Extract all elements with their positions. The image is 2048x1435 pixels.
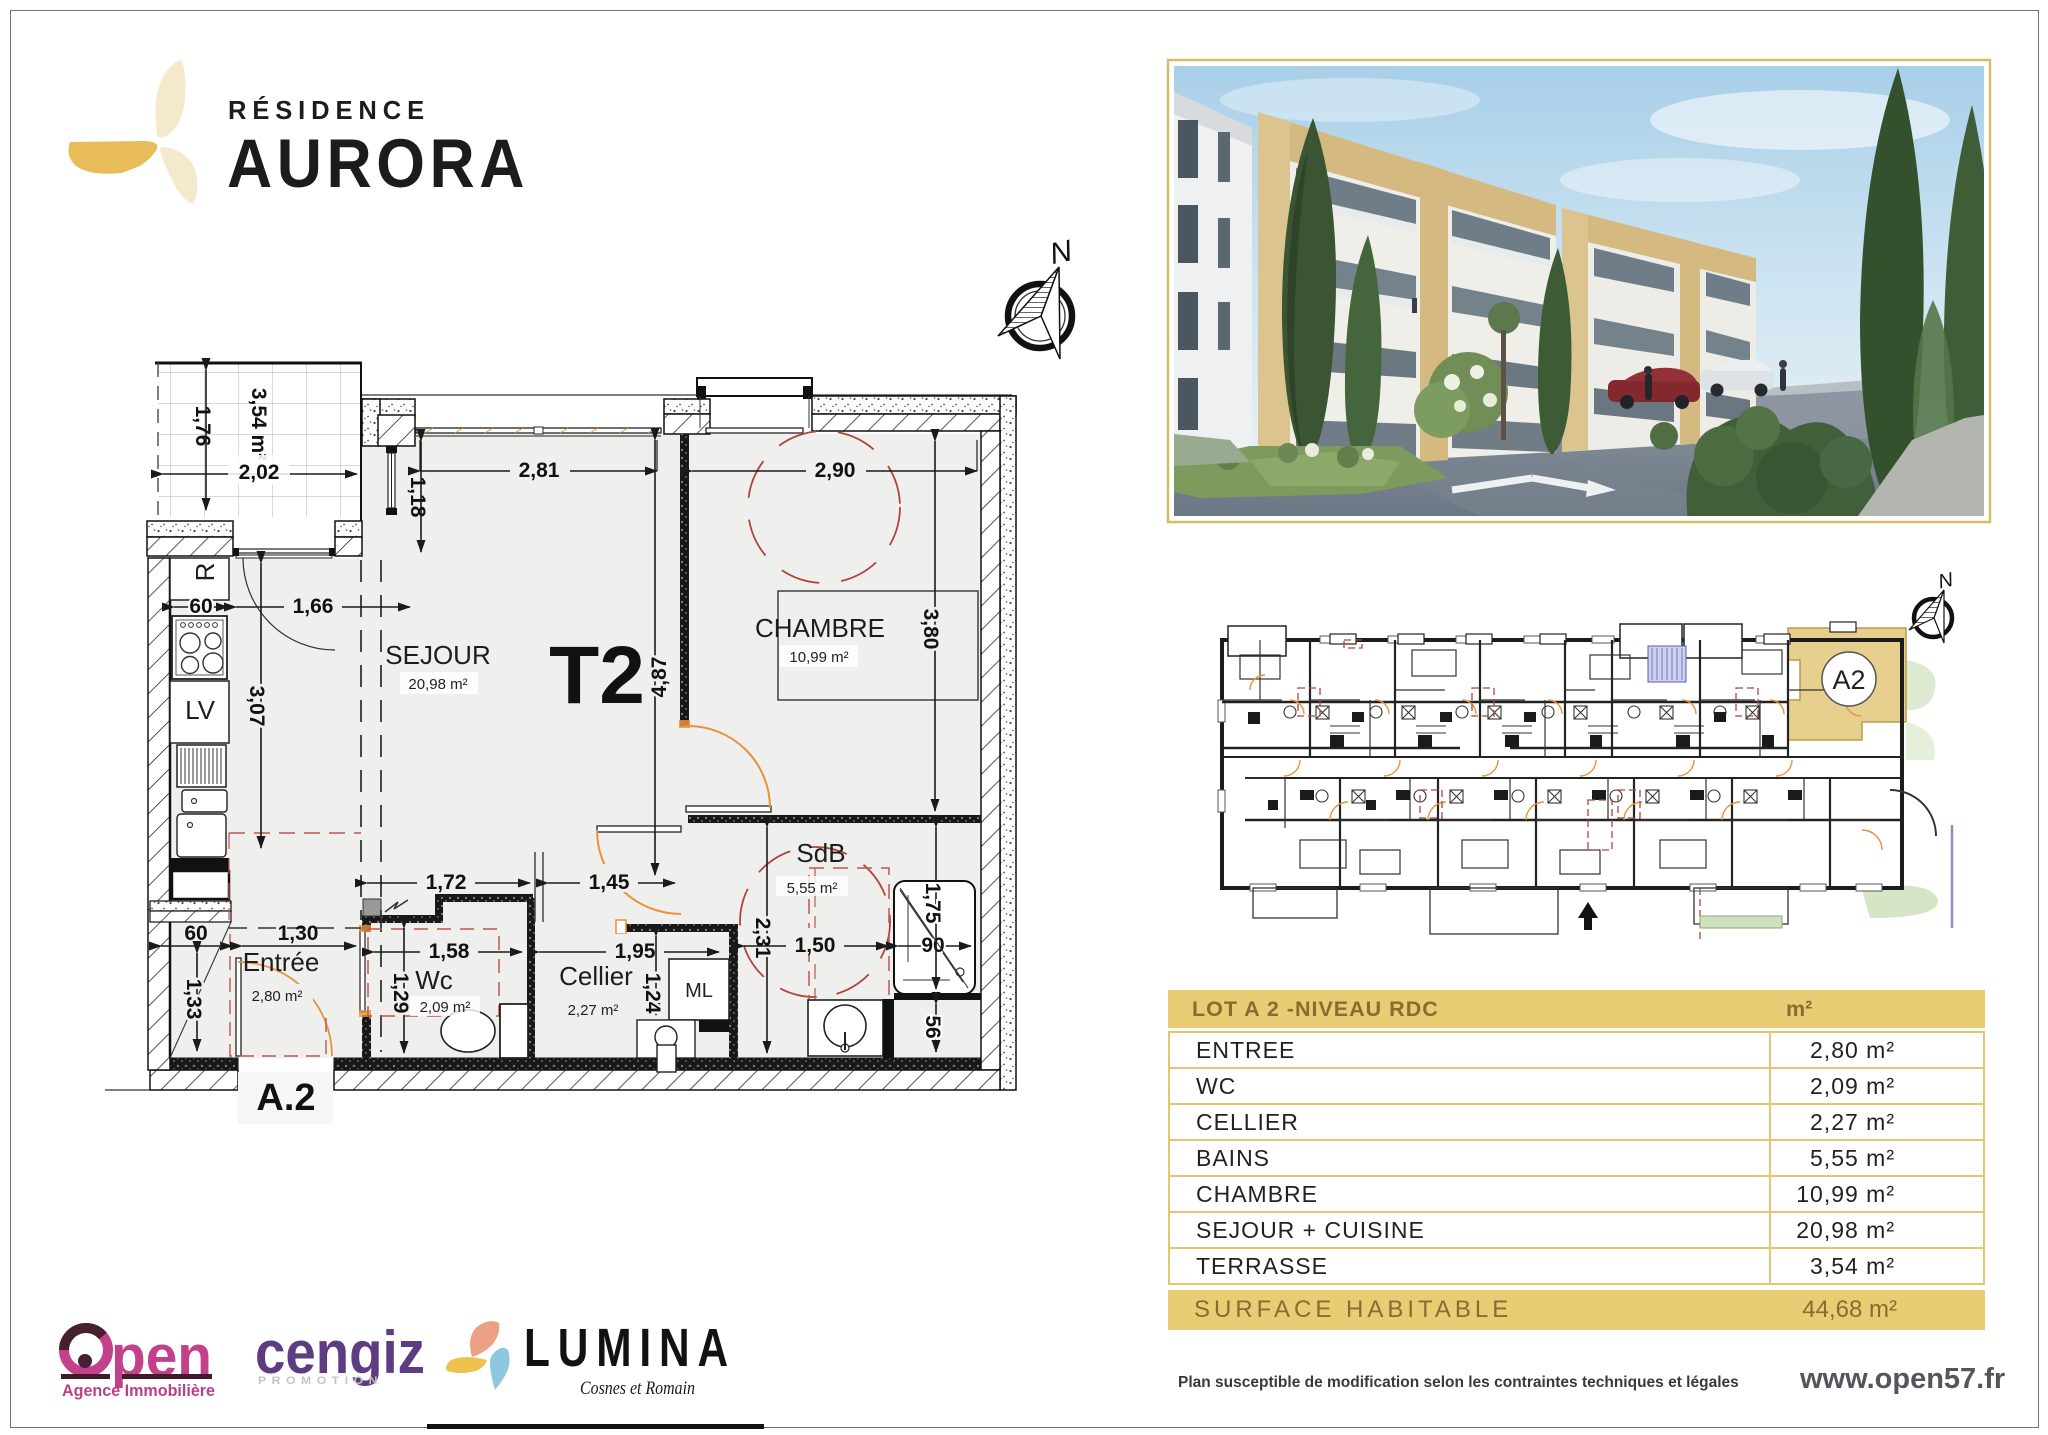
svg-text:Cellier: Cellier: [559, 961, 633, 991]
svg-text:2,90: 2,90: [815, 459, 856, 482]
svg-text:1,30: 1,30: [278, 922, 319, 945]
svg-text:LUMINA: LUMINA: [524, 1318, 736, 1378]
svg-text:1,50: 1,50: [795, 934, 836, 957]
svg-text:1,58: 1,58: [429, 940, 470, 963]
svg-text:1,29: 1,29: [389, 973, 412, 1014]
svg-text:1,95: 1,95: [615, 940, 656, 963]
svg-text:60: 60: [189, 595, 212, 618]
svg-text:Cosnes et Romain: Cosnes et Romain: [580, 1378, 695, 1399]
svg-text:3,07: 3,07: [245, 686, 268, 727]
svg-text:1,76: 1,76: [191, 406, 214, 447]
svg-text:10,99 m²: 10,99 m²: [789, 649, 848, 666]
svg-text:Agence Immobilière: Agence Immobilière: [62, 1381, 215, 1400]
svg-text:Entrée: Entrée: [243, 947, 320, 977]
svg-text:1,72: 1,72: [426, 871, 467, 894]
svg-text:CHAMBRE: CHAMBRE: [755, 613, 885, 643]
svg-text:1,75: 1,75: [921, 883, 944, 924]
svg-text:5,55 m²: 5,55 m²: [787, 880, 838, 897]
svg-text:A2: A2: [1832, 665, 1865, 695]
svg-text:SEJOUR: SEJOUR: [385, 640, 490, 670]
svg-text:2,09 m²: 2,09 m²: [420, 999, 471, 1016]
svg-text:PROMOTION: PROMOTION: [258, 1375, 383, 1387]
svg-text:R: R: [190, 563, 220, 582]
svg-text:2,02: 2,02: [239, 461, 280, 484]
svg-text:1,33: 1,33: [182, 979, 205, 1020]
svg-text:3,80: 3,80: [919, 609, 942, 650]
svg-text:2,31: 2,31: [751, 918, 774, 959]
svg-text:1,45: 1,45: [589, 871, 630, 894]
svg-text:56: 56: [921, 1015, 944, 1038]
svg-text:pen: pen: [111, 1324, 212, 1389]
svg-text:4,87: 4,87: [648, 657, 671, 698]
svg-text:1,18: 1,18: [406, 477, 429, 518]
svg-text:1,66: 1,66: [293, 595, 334, 618]
svg-text:Wc: Wc: [415, 965, 453, 995]
svg-text:N: N: [1936, 569, 1955, 594]
svg-text:2,80 m²: 2,80 m²: [252, 988, 303, 1005]
svg-text:LV: LV: [185, 695, 216, 725]
svg-text:20,98 m²: 20,98 m²: [408, 676, 467, 693]
svg-text:60: 60: [184, 922, 207, 945]
svg-text:1,24: 1,24: [641, 973, 664, 1014]
svg-text:SdB: SdB: [796, 838, 845, 868]
svg-text:A.2: A.2: [256, 1077, 315, 1119]
svg-text:3,54 m²: 3,54 m²: [247, 388, 270, 460]
svg-text:N: N: [1047, 234, 1075, 271]
svg-text:2,81: 2,81: [519, 459, 560, 482]
svg-text:T2: T2: [549, 630, 645, 721]
svg-text:2,27 m²: 2,27 m²: [568, 1002, 619, 1019]
svg-text:ML: ML: [685, 980, 713, 1002]
